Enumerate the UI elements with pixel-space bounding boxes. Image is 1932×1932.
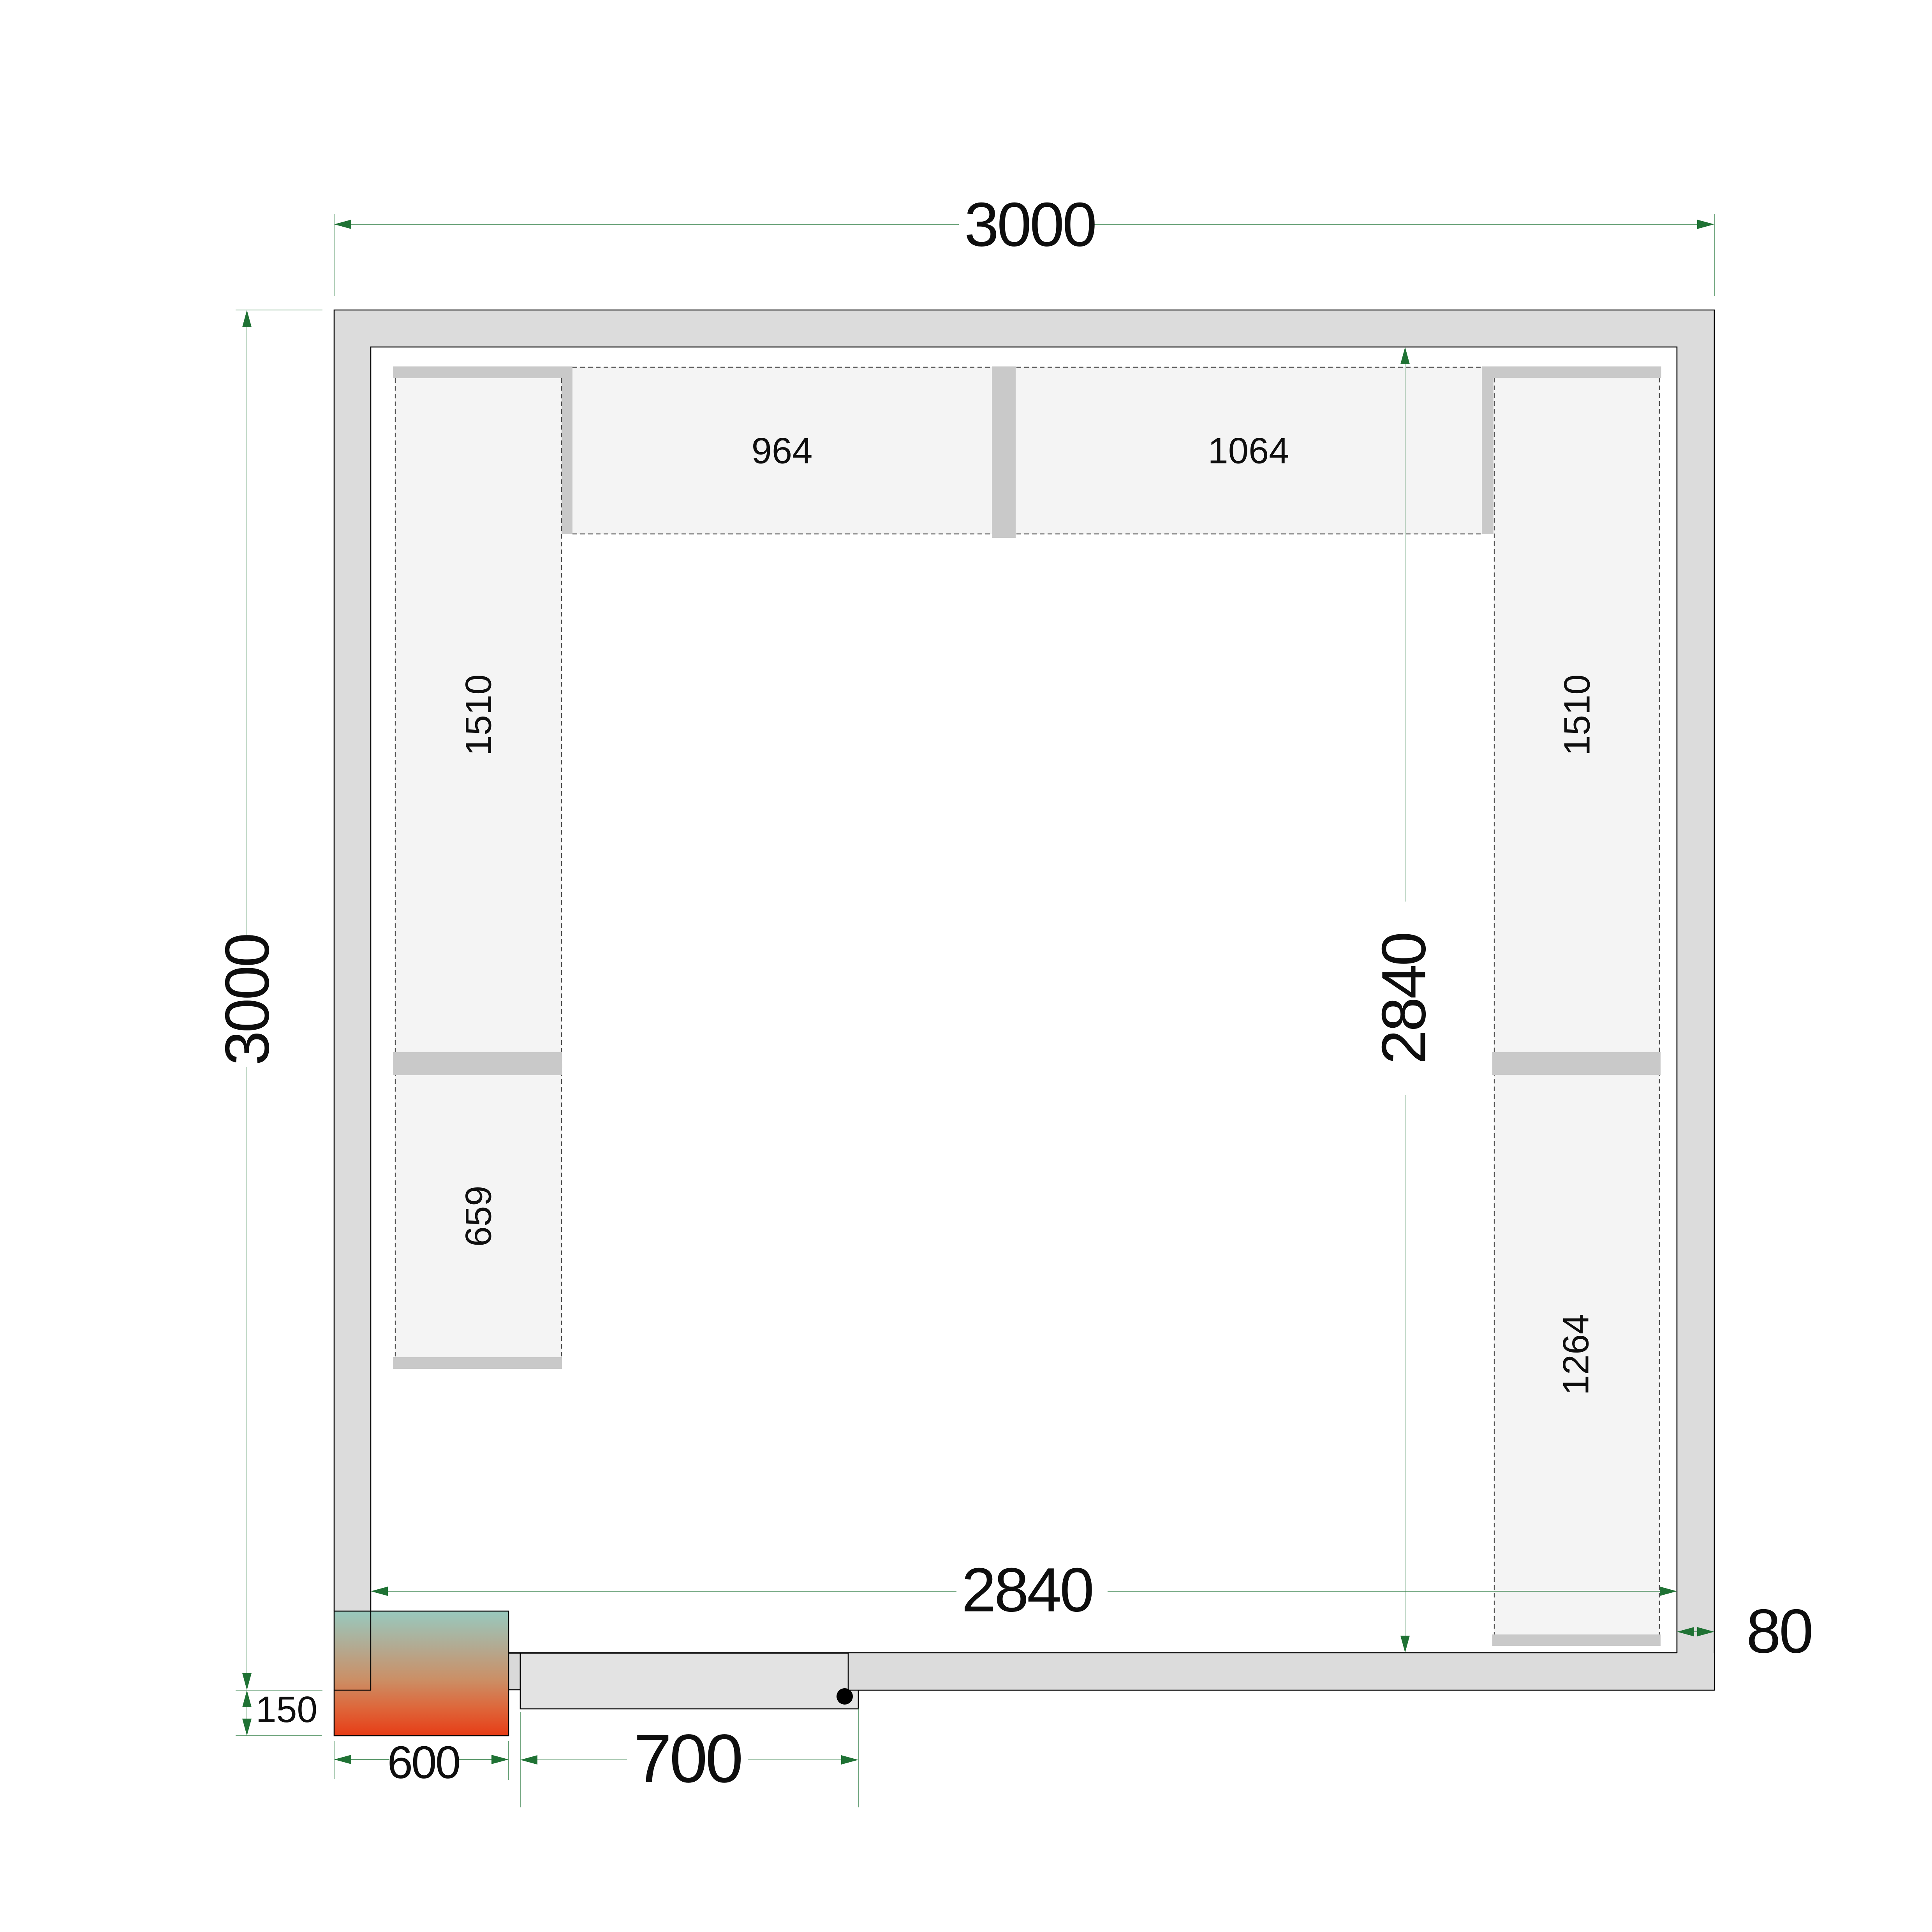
svg-text:964: 964 <box>752 430 813 471</box>
svg-text:1510: 1510 <box>1557 674 1597 756</box>
svg-text:150: 150 <box>256 1689 318 1730</box>
svg-text:3000: 3000 <box>212 935 282 1066</box>
svg-text:1264: 1264 <box>1555 1314 1596 1395</box>
svg-text:659: 659 <box>458 1186 499 1247</box>
svg-text:2840: 2840 <box>962 1555 1092 1625</box>
svg-text:1064: 1064 <box>1208 430 1289 471</box>
svg-text:600: 600 <box>387 1737 460 1788</box>
svg-text:3000: 3000 <box>964 190 1095 259</box>
svg-text:1510: 1510 <box>458 674 499 756</box>
svg-text:80: 80 <box>1746 1596 1812 1666</box>
svg-text:2840: 2840 <box>1369 933 1439 1064</box>
svg-text:700: 700 <box>634 1721 741 1797</box>
